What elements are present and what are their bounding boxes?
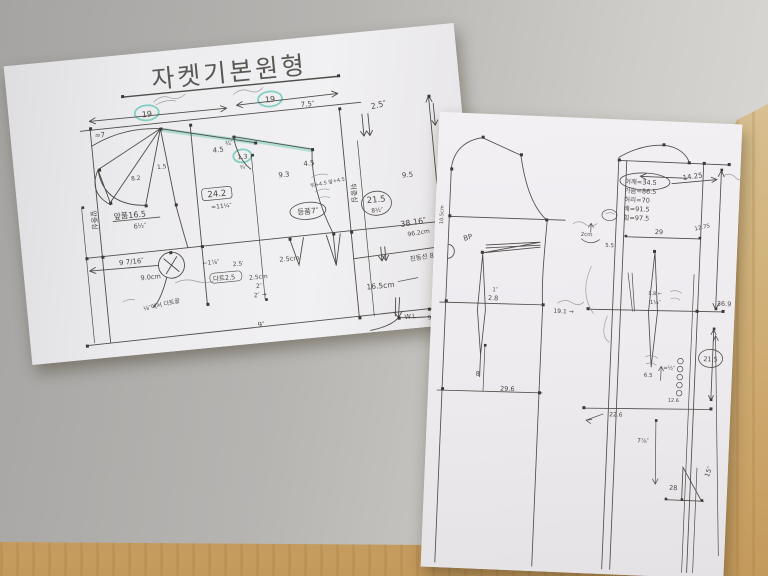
label-1-7-8: ←1⅞″ [202,259,220,268]
label-2-8-dart: 2.8 [488,294,499,302]
label-3-4-tick: ¾′ [225,140,233,148]
right-draft: BP 10.5cm 1″ 2.8 8 29.6 2cm 5.5 19.1 → 어… [421,112,743,576]
label-29-6-hip: 29.6 [500,385,515,394]
label-8-2: 8.2 [131,175,141,183]
label-8-1-2-oval: 8½″ [371,207,384,215]
label-1-1-4in: 1¼″ [650,300,661,306]
label-bust-point: BP [462,233,473,243]
label-2-5-tick: 2.5′ [232,260,244,268]
label-center-back: 뒤중심 [349,183,360,203]
label-1-3-circled: 1.3 [237,152,248,161]
label-4-5-armhole: 4.5 [303,159,315,168]
label-21-5-oval: 21.5 [366,194,386,206]
label-11-1-4: ≈11¼″ [211,202,233,211]
label-29-width: 29 [655,228,664,236]
right-draft-lines [429,136,736,574]
label-6-5: 6.5 [644,373,653,379]
label-front-width-19: 19 [265,95,276,105]
label-9in-bottom: 9″ [257,321,265,330]
label-2in-arrow: 2″ → [253,291,267,299]
label-6-1-2in: 6½″ [133,221,147,230]
left-draft: 자켓기본원형 19 19 7.5″ 2.5″ ≈7 4.5 ¾′ 1.3 ¾″ … [4,23,483,365]
right-pattern-sheet: BP 10.5cm 1″ 2.8 8 29.6 2cm 5.5 19.1 → 어… [421,112,743,576]
label-waist-line: W.L [404,312,416,321]
label-back-width-19: 19 [141,109,152,119]
label-9-7-16: 9 7/16″ [119,257,145,267]
label-7-5in: 7.5″ [300,100,315,109]
label-approx-7: ≈7 [94,131,105,140]
photo-canvas: 자켓기본원형 19 19 7.5″ 2.5″ ≈7 4.5 ¾′ 1.3 ¾″ … [0,0,768,576]
left-pattern-sheet: 자켓기본원형 19 19 7.5″ 2.5″ ≈7 4.5 ¾′ 1.3 ¾″ … [4,23,483,365]
label-36-9: 36.9 [717,300,732,309]
label-1in-dart: 1″ [492,287,498,293]
label-10-5cm-vertical: 10.5cm [439,205,446,224]
label-1-8-arrow: 1.8 ← [648,291,662,298]
label-2in: 2″ [256,283,263,291]
label-7-7-8: 7⅞″ [637,437,650,445]
label-15in: 15″ [703,465,714,478]
measure-hip: 힙=97.5 [623,213,649,223]
label-center-front: 앞중심 [89,210,100,230]
label-1-5: 1.5 [157,163,167,171]
label-9-0cm: 9.0cm [140,272,161,282]
measure-abdomen: 배=91.5 [624,204,650,214]
label-22-6: 22.6 [609,411,623,419]
label-2-5cm-small: 2.5cm [249,273,268,282]
measure-bust: 가슴=86.5 [624,186,656,196]
label-24-2-boxed: 24.2 [207,189,227,201]
label-5-5: 5.5 [605,243,614,249]
label-2cm: 2cm [581,232,593,238]
measure-shoulder: 어깨=34.5 [625,177,657,187]
label-96-2cm: 96.2cm [407,228,431,239]
label-12-6: 12.6 [668,398,679,404]
left-point-marks [62,64,467,350]
label-28: 28 [669,484,678,492]
label-2-5cm-right: 2.5cm [279,254,300,264]
left-faint-notes [104,69,466,302]
label-9-5: 9.5 [402,171,414,180]
measure-waist: 허리=70 [624,195,650,205]
label-16-5cm: 16.5cm [366,280,395,292]
label-9-3: 9.3 [278,170,290,179]
label-2-5in: 2.5″ [370,99,387,111]
label-plus-4-5-note: 뒤+4.5 앞+4.5 [310,176,346,190]
label-3-4-under: ¾″ [240,164,248,171]
label-dart-end-note: ⅛″에서 다트끝 [142,296,181,313]
label-half-inch: =½″ [663,364,675,371]
label-front-width-16-5: 앞품16.5 [113,208,146,221]
label-21-5-oval-right: 21.5 [703,355,718,364]
label-back-panel-7in: 등품7″ [297,206,319,217]
label-4-5-neck: 4.5 [212,146,224,155]
label-8-dim: 8 [476,370,480,378]
label-19-1-arrow: 19.1 → [553,308,574,316]
label-14-25: 14.25 [682,172,703,183]
right-point-marks [437,134,732,502]
label-12-75: 12.75 [694,223,711,232]
sheet-title: 자켓기본원형 [150,50,308,94]
label-38-16in: 38.16″ [400,216,427,229]
